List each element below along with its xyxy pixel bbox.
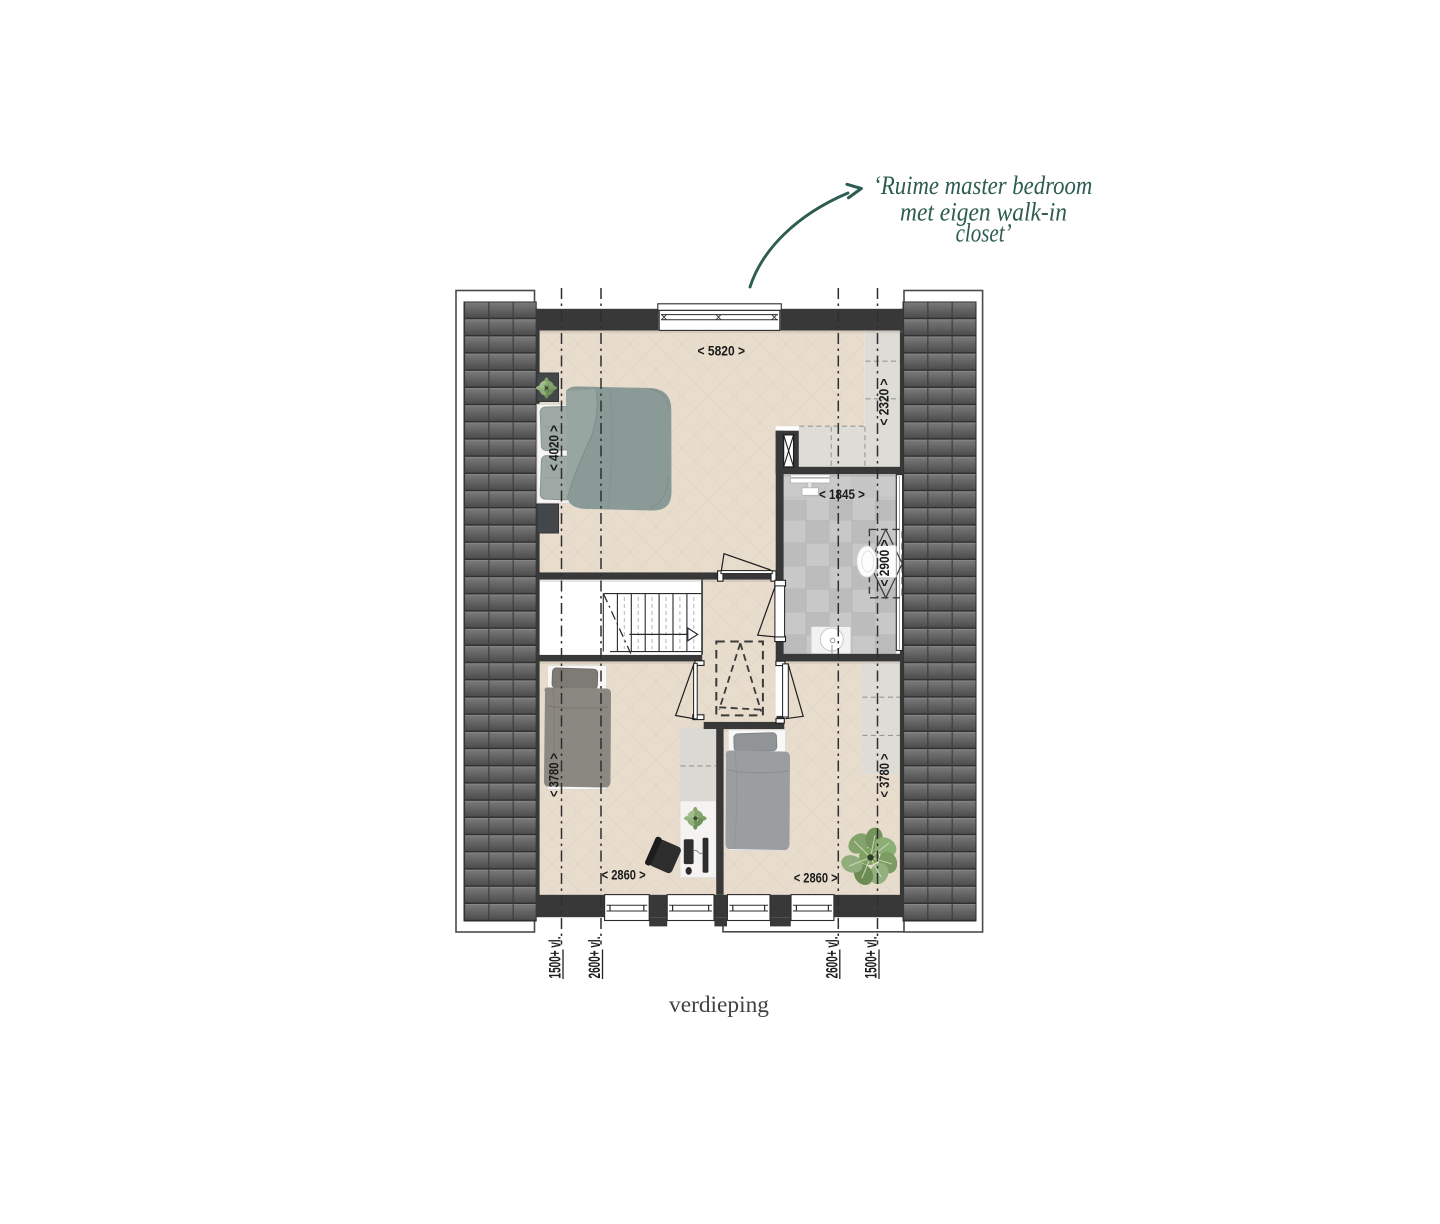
svg-text:‘Ruime master bedroom: ‘Ruime master bedroom (873, 171, 1092, 200)
svg-text:< 2900 >: < 2900 > (877, 540, 893, 587)
svg-text:2600+ vl.: 2600+ vl. (586, 937, 604, 979)
svg-text:< 5820 >: < 5820 > (698, 344, 746, 360)
svg-text:2600+ vl.: 2600+ vl. (823, 937, 841, 979)
svg-text:closet’: closet’ (956, 219, 1012, 248)
svg-text:< 3780 >: < 3780 > (877, 754, 893, 798)
svg-text:verdieping: verdieping (669, 992, 769, 1018)
svg-text:1500+ vl.: 1500+ vl. (863, 937, 881, 979)
svg-text:< 2860 >: < 2860 > (602, 867, 646, 883)
svg-text:< 1845 >: < 1845 > (819, 487, 865, 503)
svg-text:< 2860 >: < 2860 > (794, 870, 838, 886)
svg-text:< 3780 >: < 3780 > (547, 753, 563, 797)
svg-text:< 4020 >: < 4020 > (547, 425, 563, 471)
svg-text:< 2320 >: < 2320 > (877, 379, 893, 426)
svg-text:1500+ vl.: 1500+ vl. (547, 937, 565, 979)
